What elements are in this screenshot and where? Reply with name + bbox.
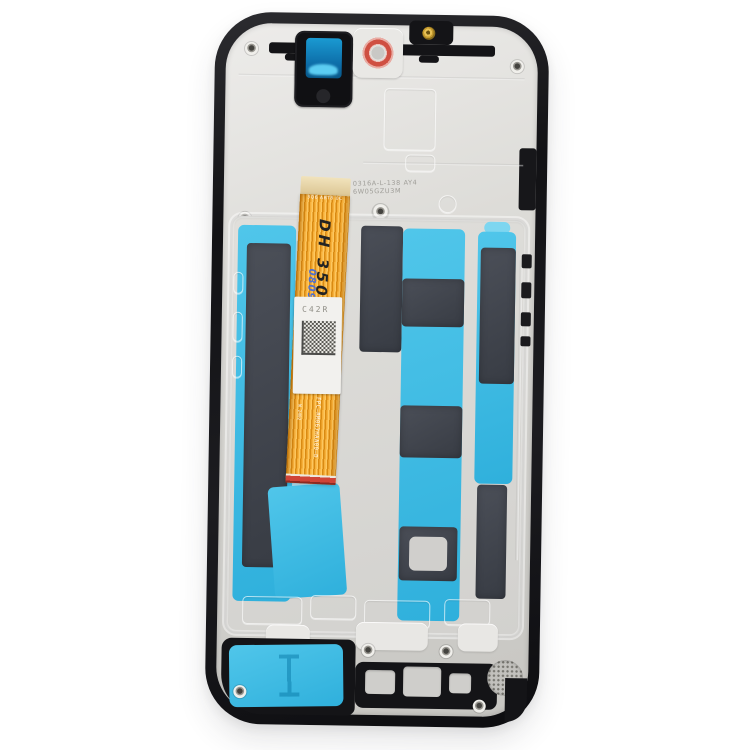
phone-frame-assembly: 0316A-L-138 AY4 6W05GZU3M 3Q6 ABT8 0C DH	[204, 11, 549, 728]
etched-serial-text: 0316A-L-138 AY4 6W05GZU3M	[353, 177, 473, 195]
graphite-block-b2	[475, 485, 507, 599]
bottom-black-molding-right	[504, 678, 527, 722]
frame-lip-tab	[419, 56, 439, 63]
screw-hole	[245, 42, 258, 55]
flex-batch-code: W 2402	[296, 404, 302, 420]
graphite-sheet-center	[359, 226, 403, 353]
display-back-panel	[226, 216, 526, 637]
molding-cutout	[365, 670, 395, 694]
graphite-window-cutout	[409, 537, 448, 572]
etched-rectangle	[310, 595, 356, 620]
side-button-nub	[521, 282, 531, 298]
camera-grommet-plate	[353, 28, 404, 79]
graphite-block-window	[399, 526, 458, 581]
qc-sticker-code: C42R	[302, 305, 329, 314]
side-button-nub	[522, 254, 532, 268]
datamatrix-code	[301, 321, 336, 356]
etched-rectangle	[444, 599, 490, 626]
camera-window	[306, 38, 343, 79]
side-button-nub	[521, 312, 531, 326]
edge-etch-mark	[232, 312, 242, 342]
flex-end-red-stripe	[286, 474, 336, 486]
speaker-adhesive-cyan	[229, 644, 344, 707]
camera-window-glow	[309, 64, 338, 75]
gold-screw-post	[422, 27, 435, 40]
side-button-nub	[520, 336, 530, 346]
molded-boss	[458, 623, 498, 652]
molding-cutout	[449, 673, 471, 693]
edge-etch-mark	[233, 272, 243, 294]
camera-grommet-red-seal	[361, 36, 396, 71]
molding-cutout	[403, 666, 441, 697]
frame-side-rail	[519, 148, 537, 210]
screw-hole	[233, 685, 246, 698]
graphite-block-a1	[402, 278, 465, 327]
screw-post-mount	[409, 20, 453, 45]
graphite-block-a2	[400, 405, 463, 458]
screw-hole	[473, 700, 486, 713]
panel-ridge-line	[515, 260, 523, 560]
etched-rectangle	[383, 88, 436, 151]
qc-sticker: C42R	[293, 297, 343, 395]
graphite-block-b1	[479, 248, 516, 385]
etched-rectangle	[242, 596, 302, 625]
screw-hole	[511, 60, 524, 73]
adhesive-i-mark	[279, 654, 299, 696]
edge-etch-mark	[232, 356, 242, 378]
etched-rectangle	[405, 154, 435, 171]
adhesive-under-flex	[267, 482, 347, 599]
